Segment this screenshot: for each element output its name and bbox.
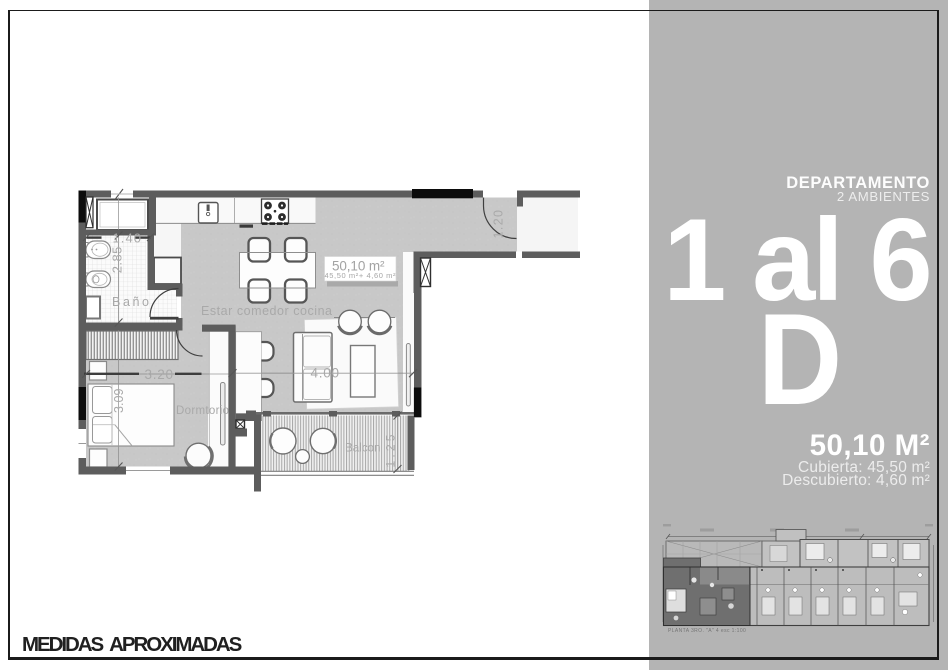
svg-text:1.20: 1.20	[492, 210, 506, 239]
svg-text:Dormtorio: Dormtorio	[176, 405, 229, 417]
svg-text:Estar comedor cocina: Estar comedor cocina	[201, 304, 334, 318]
svg-text:4.00: 4.00	[311, 366, 340, 381]
svg-text:1.40: 1.40	[113, 231, 142, 246]
svg-text:3.09: 3.09	[112, 388, 126, 413]
svg-text:Balcon: Balcon	[345, 443, 381, 455]
svg-text:3.20: 3.20	[145, 367, 174, 382]
svg-text:PLANTA 3RO. "A" 4 esc 1:100: PLANTA 3RO. "A" 4 esc 1:100	[668, 628, 746, 634]
svg-text:45,50 m²+ 4,60 m²: 45,50 m²+ 4,60 m²	[325, 271, 397, 280]
svg-text:2.85: 2.85	[110, 247, 125, 274]
svg-text:1.25: 1.25	[384, 434, 398, 467]
